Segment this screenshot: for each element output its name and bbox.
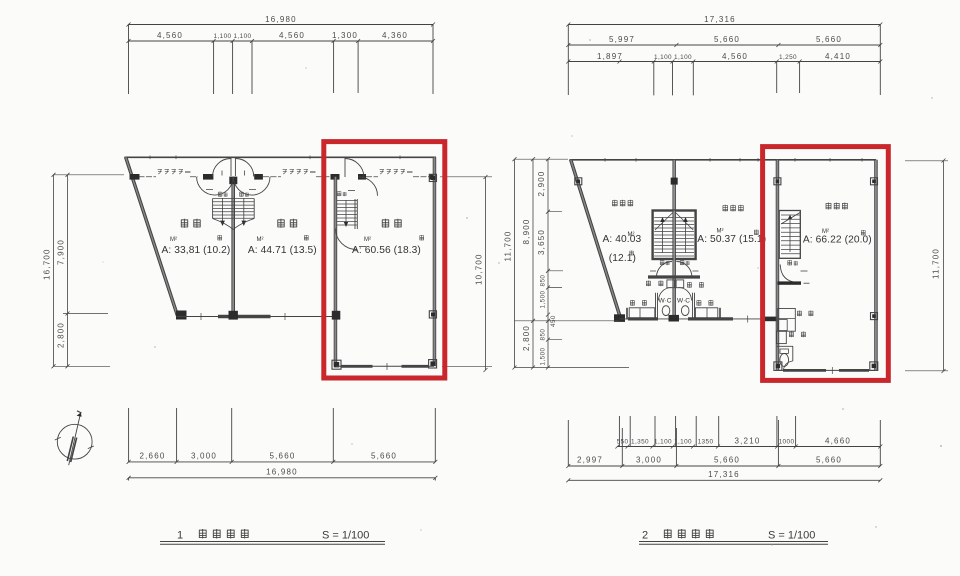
- svg-text:3,000: 3,000: [636, 456, 662, 465]
- svg-text:550: 550: [617, 439, 629, 446]
- svg-text:1,350: 1,350: [631, 439, 649, 446]
- svg-text:A: 33,81 (10.2): A: 33,81 (10.2): [162, 245, 231, 256]
- svg-text:1,100: 1,100: [654, 54, 672, 61]
- svg-text:S = 1/100: S = 1/100: [322, 530, 369, 542]
- svg-text:5,660: 5,660: [371, 452, 397, 461]
- svg-text:5,660: 5,660: [816, 456, 842, 465]
- svg-text:850: 850: [540, 329, 547, 341]
- svg-text:1,100: 1,100: [214, 33, 232, 40]
- svg-text:2,900: 2,900: [537, 170, 546, 196]
- svg-text:2,800: 2,800: [522, 325, 531, 351]
- svg-text:1,500: 1,500: [540, 290, 547, 308]
- svg-text:11,700: 11,700: [932, 248, 941, 279]
- svg-text:16,980: 16,980: [266, 468, 298, 477]
- svg-text:4,660: 4,660: [825, 437, 851, 446]
- svg-text:4,560: 4,560: [722, 52, 748, 61]
- svg-text:(12.1): (12.1): [609, 253, 636, 264]
- svg-text:17,316: 17,316: [704, 15, 736, 24]
- svg-text:5,997: 5,997: [609, 35, 635, 44]
- svg-text:S = 1/100: S = 1/100: [768, 530, 815, 542]
- svg-text:A: 66.22 (20.0): A: 66.22 (20.0): [803, 235, 872, 246]
- svg-text:1,300: 1,300: [332, 31, 358, 40]
- svg-text:1,100: 1,100: [674, 439, 692, 446]
- svg-text:1,897: 1,897: [597, 52, 623, 61]
- svg-text:A: 44.71 (13.5): A: 44.71 (13.5): [248, 245, 317, 256]
- svg-text:1,100: 1,100: [654, 439, 672, 446]
- svg-text:5,660: 5,660: [269, 452, 295, 461]
- svg-text:3,650: 3,650: [537, 229, 546, 255]
- svg-text:M²: M²: [628, 232, 635, 238]
- svg-text:4,410: 4,410: [825, 52, 851, 61]
- svg-text:5,660: 5,660: [714, 35, 740, 44]
- svg-text:2,997: 2,997: [577, 456, 603, 465]
- svg-text:1: 1: [177, 530, 184, 542]
- svg-text:1,100: 1,100: [234, 33, 252, 40]
- svg-text:1000: 1000: [779, 439, 795, 446]
- svg-text:4,560: 4,560: [279, 31, 305, 40]
- svg-text:11,700: 11,700: [504, 230, 513, 261]
- svg-text:1,500: 1,500: [540, 347, 547, 365]
- svg-text:3,210: 3,210: [734, 437, 760, 446]
- svg-text:8,900: 8,900: [522, 218, 531, 244]
- svg-text:M²: M²: [170, 237, 177, 243]
- svg-text:2,800: 2,800: [57, 322, 66, 348]
- svg-text:2: 2: [642, 530, 649, 542]
- svg-text:M²: M²: [257, 237, 264, 243]
- svg-text:W·C: W·C: [677, 298, 690, 305]
- svg-text:16,700: 16,700: [43, 248, 52, 280]
- svg-text:4,360: 4,360: [382, 31, 408, 40]
- svg-text:5,660: 5,660: [816, 35, 842, 44]
- svg-text:M²: M²: [364, 237, 371, 243]
- svg-text:17,316: 17,316: [708, 470, 740, 479]
- svg-text:850: 850: [540, 275, 547, 287]
- svg-text:W·C: W·C: [659, 298, 672, 305]
- svg-text:A: 60.56 (18.3): A: 60.56 (18.3): [352, 245, 421, 256]
- svg-text:5,660: 5,660: [714, 456, 740, 465]
- svg-text:M²: M²: [822, 229, 829, 235]
- svg-text:4,560: 4,560: [157, 31, 183, 40]
- svg-text:450: 450: [550, 315, 557, 327]
- svg-text:10,700: 10,700: [475, 253, 484, 285]
- svg-text:7,900: 7,900: [57, 239, 66, 265]
- svg-text:1350: 1350: [698, 439, 714, 446]
- svg-text:1,250: 1,250: [779, 54, 797, 61]
- svg-text:3,000: 3,000: [191, 452, 217, 461]
- svg-text:16,980: 16,980: [265, 15, 297, 24]
- svg-text:M²: M²: [717, 229, 724, 235]
- svg-text:A: 40.03: A: 40.03: [603, 234, 642, 245]
- svg-text:A: 50.37 (15.1): A: 50.37 (15.1): [697, 234, 766, 245]
- svg-text:1,100: 1,100: [674, 54, 692, 61]
- svg-text:2,660: 2,660: [139, 452, 165, 461]
